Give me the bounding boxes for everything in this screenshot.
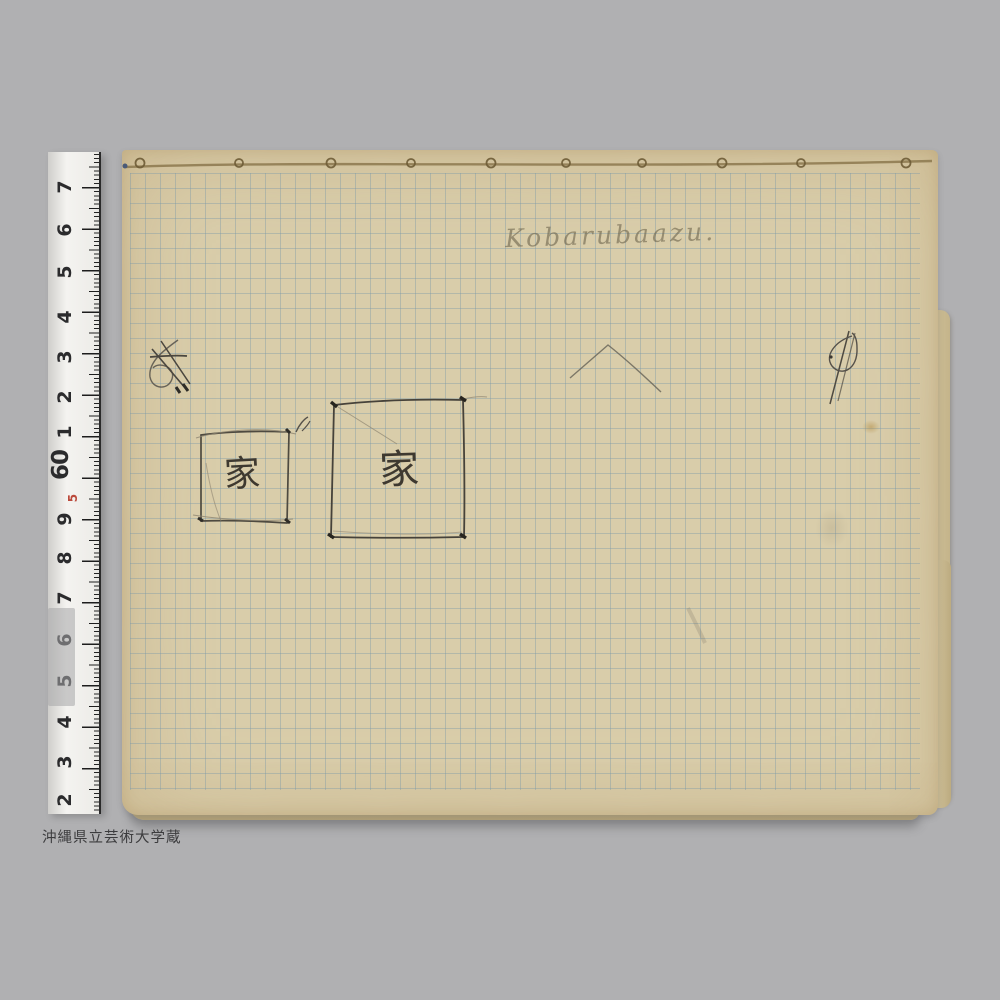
ruler-number: 2 bbox=[54, 787, 76, 813]
ruler-number: 2 bbox=[54, 384, 76, 410]
ruler-number: 5 bbox=[54, 259, 76, 285]
paper-stain bbox=[862, 420, 880, 434]
ruler-number: 3 bbox=[54, 749, 76, 775]
archival-photo-scene: 7 6 5 4 3 2 1 60 5 9 8 7 6 5 4 3 2 bbox=[0, 0, 1000, 1000]
paper-smudge bbox=[815, 508, 849, 548]
small-square-kanji-house: 家 bbox=[223, 444, 262, 498]
ruler-number: 4 bbox=[54, 709, 76, 735]
ruler-number: 8 bbox=[54, 545, 76, 571]
ruler-number: 3 bbox=[54, 344, 76, 370]
ruler-tape-patch bbox=[48, 608, 75, 706]
ruler-number: 9 bbox=[54, 506, 76, 532]
ruler-number: 1 bbox=[54, 419, 76, 445]
ruler-edge-line bbox=[99, 152, 101, 814]
ruler-number: 6 bbox=[54, 217, 76, 243]
collection-caption: 沖縄県立芸術大学蔵 bbox=[42, 826, 182, 847]
ruler-tick-marks bbox=[81, 152, 101, 814]
ruler-number-60: 60 bbox=[50, 454, 72, 480]
large-square-kanji-house: 家 bbox=[378, 436, 420, 495]
ruler-number: 7 bbox=[54, 174, 76, 200]
ruler-number: 4 bbox=[54, 304, 76, 330]
measuring-tape: 7 6 5 4 3 2 1 60 5 9 8 7 6 5 4 3 2 bbox=[48, 152, 101, 814]
